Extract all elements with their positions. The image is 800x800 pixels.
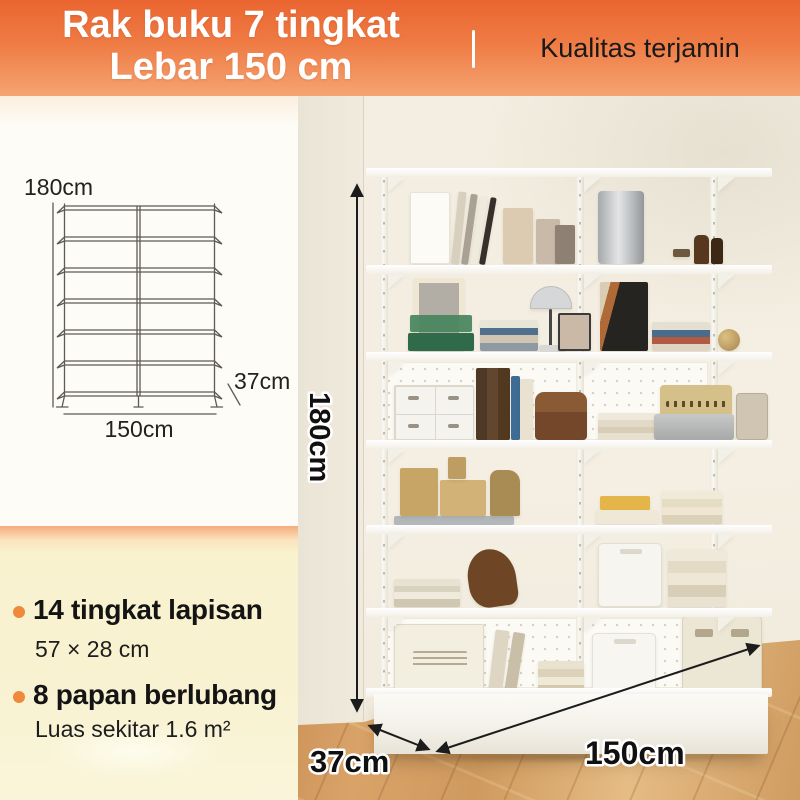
shelf-bracket <box>584 617 601 632</box>
shelf-bracket <box>388 177 405 192</box>
shelf-board <box>366 352 772 361</box>
bullet-dot-icon <box>13 691 25 703</box>
shelf-plinth <box>374 694 768 754</box>
pencil-cup <box>448 457 466 479</box>
book-stack <box>598 413 662 440</box>
typewriter-base <box>654 414 734 440</box>
dimension-diagram-panel: 180cm 150cm 37cm <box>0 96 298 526</box>
book-spine <box>511 376 520 440</box>
storage-bin <box>592 633 656 693</box>
shelf-board <box>366 265 772 274</box>
storage-bin <box>598 543 662 607</box>
book-stack <box>662 491 722 524</box>
shelf-unit <box>298 96 800 800</box>
shelf-bracket <box>584 274 601 289</box>
book-stack <box>596 510 658 524</box>
features-panel: 14 tingkat lapisan 57 × 28 cm 8 papan be… <box>0 526 298 800</box>
shelf-bracket <box>388 449 405 464</box>
shelf-bracket <box>388 274 405 289</box>
photo-card <box>555 225 575 264</box>
display-tray <box>394 516 514 525</box>
shelf-board <box>366 608 772 617</box>
wood-model <box>440 480 486 516</box>
art-print <box>503 208 533 264</box>
shelf-bracket <box>584 449 601 464</box>
title-line-1: Rak buku 7 tingkat <box>15 4 447 46</box>
drawer-organizer <box>394 385 474 440</box>
diagram-width-label: 150cm <box>89 416 189 443</box>
shelf-bracket <box>584 177 601 192</box>
bookend-box <box>410 192 450 264</box>
magazine-stack <box>394 579 460 607</box>
feature-title: 14 tingkat lapisan <box>33 594 293 626</box>
shelf-bracket <box>388 617 405 632</box>
acrylic-tray <box>408 333 474 351</box>
suitcase <box>736 393 768 440</box>
page-title: Rak buku 7 tingkat Lebar 150 cm <box>15 4 447 88</box>
shelf-bracket <box>718 177 735 192</box>
bullet-dot-icon <box>13 606 25 618</box>
book-board <box>520 379 533 440</box>
leather-bag <box>535 392 587 440</box>
wood-sculpture <box>464 546 520 610</box>
storage-crate <box>394 624 484 693</box>
yellow-book <box>600 496 650 510</box>
book-stack <box>652 322 710 351</box>
shelf-wireframe <box>0 96 298 526</box>
product-photo: 180cm 37cm 150cm <box>298 96 800 800</box>
shelf-board <box>366 168 772 177</box>
boot-figurine <box>694 235 709 264</box>
magazine-file <box>600 282 648 351</box>
shelf-bracket <box>388 534 405 549</box>
feature-title: 8 papan berlubang <box>33 679 293 711</box>
book-stack <box>480 320 538 351</box>
diagram-height-label: 180cm <box>24 174 93 201</box>
diagram-depth-label: 37cm <box>234 368 290 395</box>
feature-detail: 57 × 28 cm <box>35 636 285 663</box>
quality-tagline: Kualitas terjamin <box>505 33 775 64</box>
shelf-bracket <box>718 449 735 464</box>
header-divider <box>472 30 475 68</box>
acrylic-tray <box>410 315 472 332</box>
shelf-bracket <box>718 361 735 376</box>
wood-model <box>400 468 438 516</box>
desk-lamp-dome <box>530 286 572 309</box>
card-rack <box>558 313 591 351</box>
trinket <box>673 249 690 257</box>
shelf-bracket <box>584 534 601 549</box>
shelf-bracket <box>718 617 735 632</box>
shelf-post <box>380 174 388 698</box>
shelf-bracket <box>388 361 405 376</box>
typewriter-top <box>660 385 732 414</box>
shelf-bracket <box>718 534 735 549</box>
title-line-2: Lebar 150 cm <box>15 46 447 88</box>
wood-horse <box>490 470 520 516</box>
storage-tin <box>718 329 740 351</box>
hardcover-books <box>476 368 510 440</box>
header-banner: Rak buku 7 tingkat Lebar 150 cm Kualitas… <box>0 0 800 96</box>
product-banner: Rak buku 7 tingkat Lebar 150 cm Kualitas… <box>0 0 800 800</box>
shelf-bracket <box>584 361 601 376</box>
air-purifier-box <box>598 191 644 264</box>
desk-lamp-stand <box>549 309 552 347</box>
shelf-board <box>366 525 772 534</box>
boot-figurine <box>711 238 723 264</box>
shelf-bracket <box>718 274 735 289</box>
feature-detail: Luas sekitar 1.6 m² <box>35 716 285 743</box>
book-stack <box>668 549 726 607</box>
shelf-board <box>366 440 772 449</box>
